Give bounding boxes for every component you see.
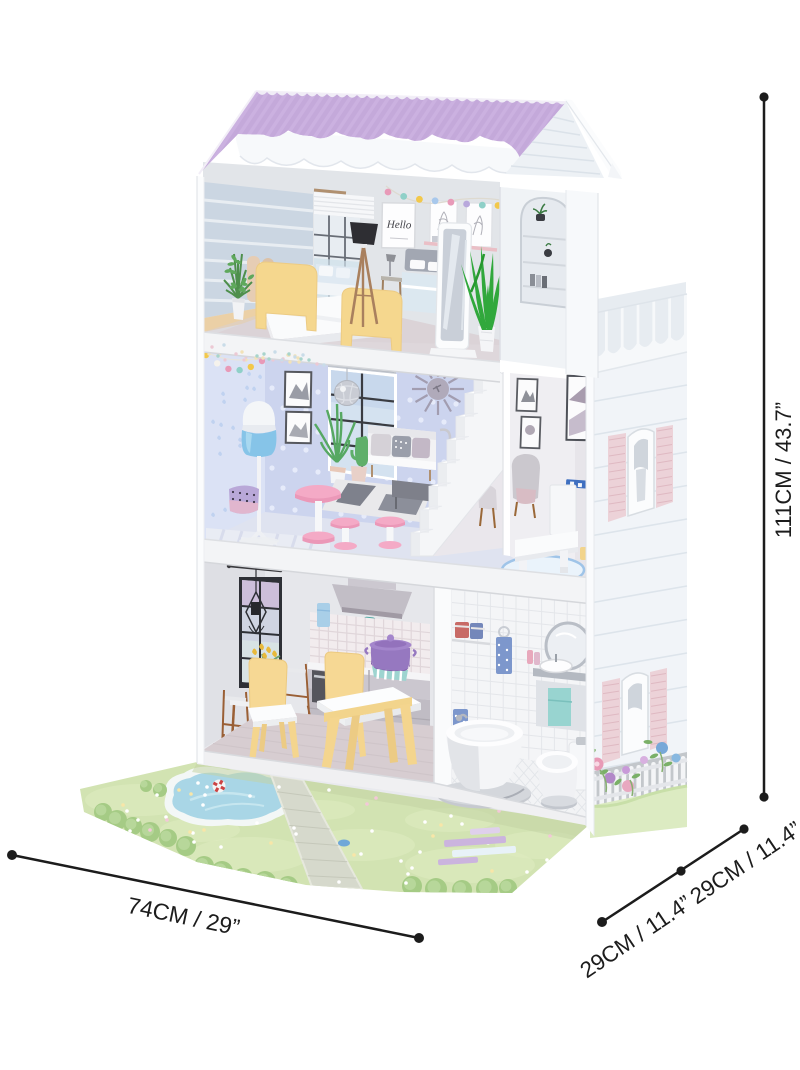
svg-text:111CM / 43.7”: 111CM / 43.7”	[771, 402, 796, 538]
svg-text:29CM / 11.4”: 29CM / 11.4”	[576, 891, 696, 984]
svg-text:Hello: Hello	[386, 219, 412, 232]
